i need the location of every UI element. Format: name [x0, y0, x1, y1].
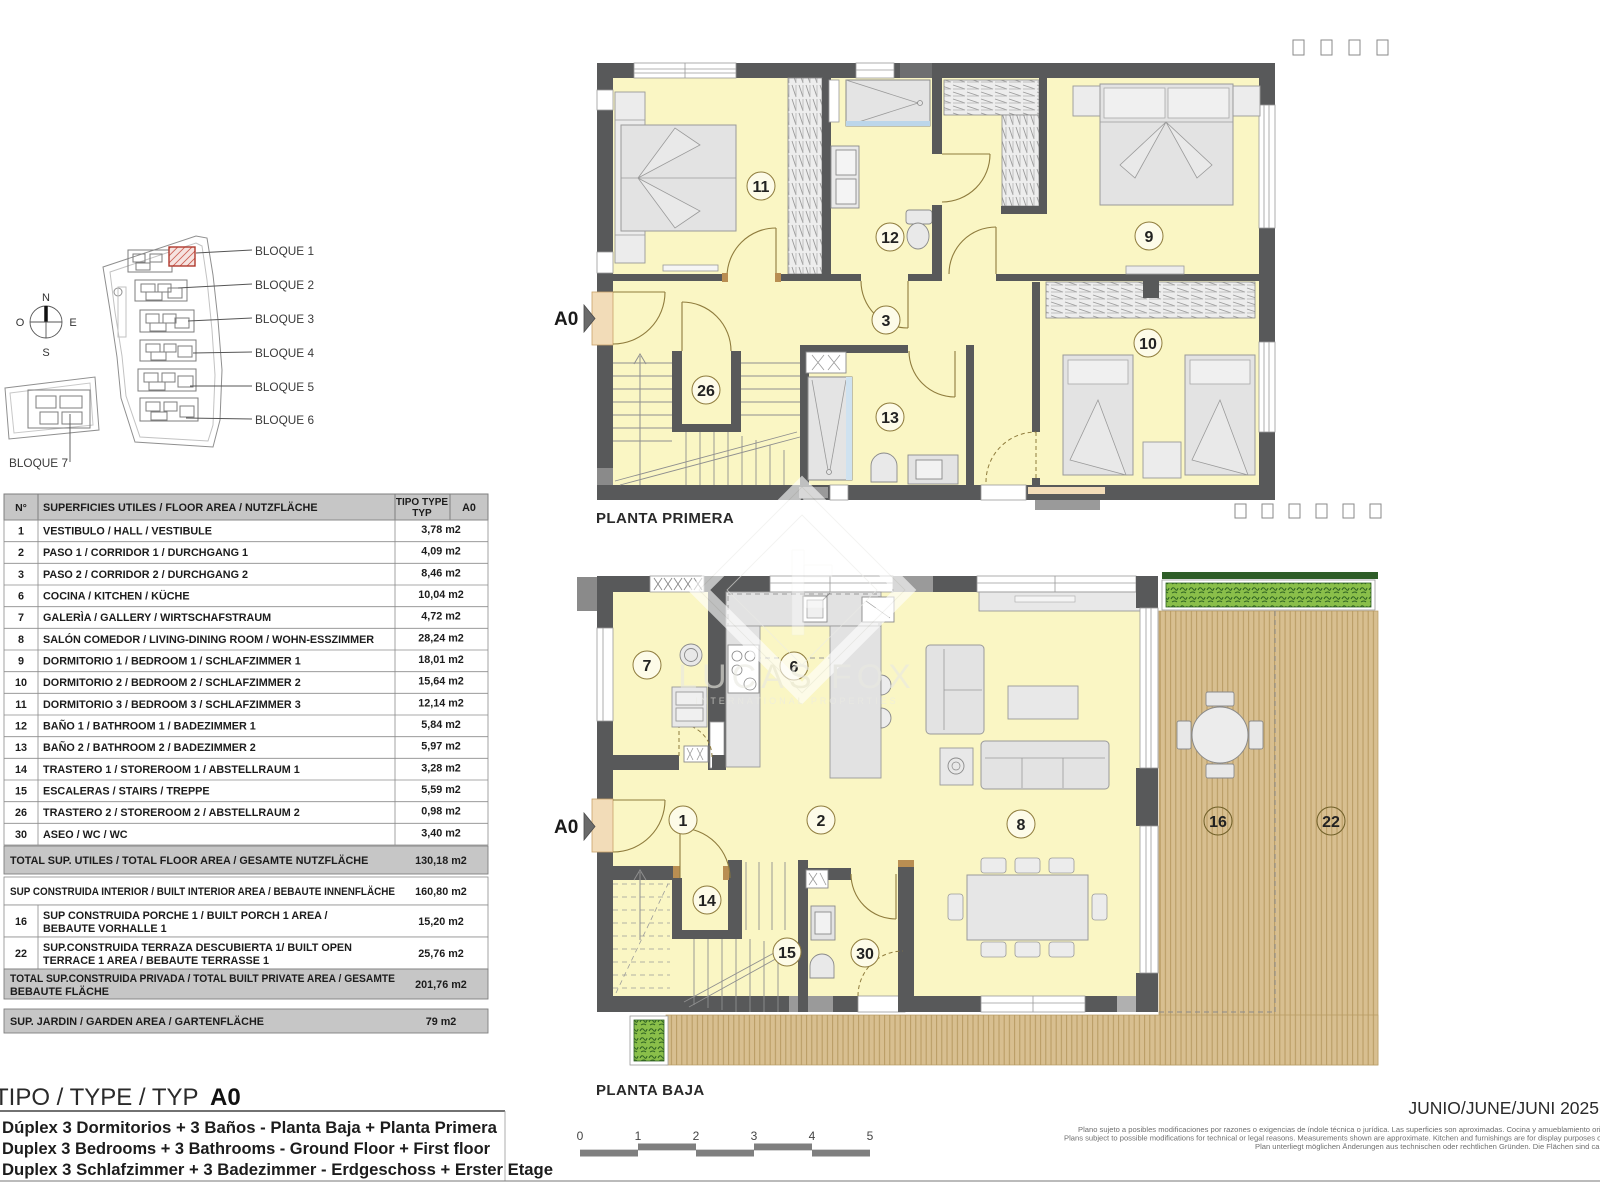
svg-text:3,28 m2: 3,28 m2 — [421, 762, 461, 774]
svg-text:GALERÌA / GALLERY / WIRTSCHAFS: GALERÌA / GALLERY / WIRTSCHAFSTRAUM — [43, 611, 271, 624]
svg-text:N: N — [42, 292, 50, 304]
svg-text:ESCALERAS / STAIRS / TREPPE: ESCALERAS / STAIRS / TREPPE — [43, 786, 210, 798]
svg-text:14: 14 — [698, 893, 716, 910]
svg-text:Dúplex 3 Dormitorios + 3 Baños: Dúplex 3 Dormitorios + 3 Baños - Planta … — [2, 1118, 498, 1137]
svg-text:A0: A0 — [554, 309, 578, 330]
svg-text:LUCAS FOX: LUCAS FOX — [678, 658, 916, 696]
svg-text:30: 30 — [15, 829, 27, 841]
svg-text:15: 15 — [15, 786, 27, 798]
svg-text:22: 22 — [15, 948, 27, 960]
svg-text:E: E — [69, 317, 76, 329]
svg-text:30: 30 — [856, 946, 874, 963]
svg-text:79 m2: 79 m2 — [426, 1016, 457, 1028]
svg-text:TRASTERO 1 / STOREROOM 1 / ABS: TRASTERO 1 / STOREROOM 1 / ABSTELLRAUM 1 — [43, 764, 300, 776]
svg-text:TERRACE 1 AREA / BEBAUTE TERR: TERRACE 1 AREA / BEBAUTE TERRASSE 1 — [43, 955, 269, 967]
svg-text:3: 3 — [882, 313, 891, 330]
svg-text:16: 16 — [15, 916, 27, 928]
svg-text:SALÓN COMEDOR / LIVING-DINING: SALÓN COMEDOR / LIVING-DINING ROOM / WOH… — [43, 633, 374, 646]
svg-text:TIPO TYPE: TIPO TYPE — [396, 497, 449, 508]
svg-text:5,59 m2: 5,59 m2 — [421, 784, 461, 796]
svg-text:7: 7 — [643, 658, 652, 675]
svg-text:A0: A0 — [462, 502, 476, 514]
svg-text:8: 8 — [18, 634, 24, 646]
svg-text:BLOQUE 1: BLOQUE 1 — [255, 244, 314, 258]
svg-text:6: 6 — [18, 591, 24, 603]
svg-text:0,98 m2: 0,98 m2 — [421, 806, 461, 818]
svg-text:SUP.CONSTRUIDA TERRAZA DESCUBI: SUP.CONSTRUIDA TERRAZA DESCUBIERTA 1/ BU… — [43, 942, 352, 954]
svg-text:7: 7 — [18, 612, 24, 624]
svg-text:13: 13 — [881, 410, 899, 427]
svg-text:12: 12 — [15, 721, 27, 733]
svg-text:3: 3 — [18, 569, 24, 581]
svg-text:9: 9 — [18, 656, 24, 668]
svg-text:1: 1 — [679, 813, 688, 830]
svg-text:2: 2 — [817, 813, 826, 830]
svg-text:DORMITORIO 2 / BEDROOM 2 / SCH: DORMITORIO 2 / BEDROOM 2 / SCHLAFZIMMER … — [43, 677, 301, 689]
svg-text:201,76 m2: 201,76 m2 — [415, 979, 467, 991]
svg-text:PASO 1 / CORRIDOR 1 / DURCHGA: PASO 1 / CORRIDOR 1 / DURCHGANG 1 — [43, 547, 248, 559]
svg-text:PLANTA PRIMERA: PLANTA PRIMERA — [596, 510, 734, 527]
svg-text:TOTAL SUP.CONSTRUIDA PRIVADA /: TOTAL SUP.CONSTRUIDA PRIVADA / TOTAL BUI… — [10, 973, 395, 985]
svg-text:A0: A0 — [210, 1084, 241, 1111]
svg-text:COCINA / KITCHEN / KÜCHE: COCINA / KITCHEN / KÜCHE — [43, 590, 190, 603]
svg-text:BLOQUE 2: BLOQUE 2 — [255, 278, 314, 292]
svg-text:10: 10 — [15, 677, 27, 689]
svg-text:A0: A0 — [554, 817, 578, 838]
svg-text:4: 4 — [809, 1129, 816, 1143]
svg-text:5,84 m2: 5,84 m2 — [421, 719, 461, 731]
svg-text:26: 26 — [15, 807, 27, 819]
svg-text:15: 15 — [778, 945, 796, 962]
svg-text:INTERNATIONAL PROPERTIES: INTERNATIONAL PROPERTIES — [695, 696, 898, 706]
svg-text:O: O — [16, 317, 25, 329]
svg-text:9: 9 — [1145, 229, 1154, 246]
svg-text:15,20 m2: 15,20 m2 — [418, 916, 464, 928]
svg-text:3,78 m2: 3,78 m2 — [421, 524, 461, 536]
svg-text:BLOQUE 3: BLOQUE 3 — [255, 312, 314, 326]
svg-text:11: 11 — [753, 179, 770, 196]
svg-text:25,76 m2: 25,76 m2 — [418, 948, 464, 960]
svg-text:TYP: TYP — [412, 508, 432, 519]
svg-text:BEBAUTE FLÄCHE: BEBAUTE FLÄCHE — [10, 985, 109, 998]
svg-text:0: 0 — [577, 1129, 584, 1143]
svg-text:SUP CONSTRUIDA PORCHE 1 / BUIL: SUP CONSTRUIDA PORCHE 1 / BUILT PORCH 1 … — [43, 910, 328, 922]
svg-text:DORMITORIO 1 / BEDROOM 1 / SCH: DORMITORIO 1 / BEDROOM 1 / SCHLAFZIMMER … — [43, 656, 301, 668]
svg-text:13: 13 — [15, 742, 27, 754]
svg-text:3,40 m2: 3,40 m2 — [421, 827, 461, 839]
svg-text:BLOQUE 7: BLOQUE 7 — [9, 456, 68, 470]
svg-text:Plan unterliegt möglichen Ände: Plan unterliegt möglichen Änderungen aus… — [1255, 1142, 1600, 1151]
svg-text:PASO 2 / CORRIDOR 2 / DURCHGA: PASO 2 / CORRIDOR 2 / DURCHGANG 2 — [43, 569, 248, 581]
svg-text:VESTIBULO / HALL / VESTIBULE: VESTIBULO / HALL / VESTIBULE — [43, 526, 212, 538]
svg-text:BEBAUTE VORHALLE 1: BEBAUTE VORHALLE 1 — [43, 923, 167, 935]
svg-text:12,14 m2: 12,14 m2 — [418, 697, 464, 709]
svg-text:15,64 m2: 15,64 m2 — [418, 676, 464, 688]
svg-text:26: 26 — [697, 383, 715, 400]
svg-text:BLOQUE 5: BLOQUE 5 — [255, 380, 314, 394]
svg-text:2: 2 — [18, 547, 24, 559]
svg-text:8: 8 — [1017, 817, 1026, 834]
svg-text:4,72 m2: 4,72 m2 — [421, 611, 461, 623]
svg-text:BAÑO 1 / BATHROOM 1 / BADEZIMM: BAÑO 1 / BATHROOM 1 / BADEZIMMER 1 — [43, 720, 256, 733]
svg-text:28,24 m2: 28,24 m2 — [418, 632, 464, 644]
svg-text:TIPO / TYPE / TYP: TIPO / TYPE / TYP — [0, 1084, 199, 1111]
svg-text:4,09 m2: 4,09 m2 — [421, 546, 461, 558]
svg-text:10,04 m2: 10,04 m2 — [418, 589, 464, 601]
svg-text:5: 5 — [867, 1129, 874, 1143]
svg-text:Duplex 3 Schlafzimmer + 3 Bade: Duplex 3 Schlafzimmer + 3 Badezimmer - E… — [2, 1160, 553, 1179]
svg-text:11: 11 — [15, 699, 26, 711]
svg-text:18,01 m2: 18,01 m2 — [418, 654, 464, 666]
svg-text:Duplex 3 Bedrooms + 3 Bathroom: Duplex 3 Bedrooms + 3 Bathrooms - Ground… — [2, 1139, 490, 1158]
svg-text:22: 22 — [1322, 814, 1340, 831]
svg-text:DORMITORIO 3 / BEDROOM 3 / SCH: DORMITORIO 3 / BEDROOM 3 / SCHLAFZIMMER … — [43, 699, 301, 711]
svg-text:BLOQUE 4: BLOQUE 4 — [255, 346, 314, 360]
svg-text:5,97 m2: 5,97 m2 — [421, 741, 461, 753]
svg-text:SUP. JARDIN / GARDEN AREA / GA: SUP. JARDIN / GARDEN AREA / GARTENFLÄCHE — [10, 1015, 264, 1028]
svg-text:BLOQUE 6: BLOQUE 6 — [255, 413, 314, 427]
svg-text:S: S — [42, 347, 49, 359]
svg-text:ASEO / WC / WC: ASEO / WC / WC — [43, 829, 128, 841]
svg-text:SUP CONSTRUIDA INTERIOR / BUIL: SUP CONSTRUIDA INTERIOR / BUILT INTERIOR… — [10, 885, 395, 898]
svg-text:1: 1 — [18, 526, 24, 538]
svg-text:12: 12 — [881, 230, 899, 247]
svg-text:1: 1 — [635, 1129, 642, 1143]
svg-text:160,80 m2: 160,80 m2 — [415, 886, 467, 898]
svg-text:3: 3 — [751, 1129, 758, 1143]
svg-text:PLANTA BAJA: PLANTA BAJA — [596, 1082, 705, 1099]
svg-text:16: 16 — [1209, 814, 1227, 831]
svg-text:2: 2 — [693, 1129, 700, 1143]
svg-text:BAÑO 2 / BATHROOM 2 / BADEZIMM: BAÑO 2 / BATHROOM 2 / BADEZIMMER 2 — [43, 741, 256, 754]
svg-text:8,46 m2: 8,46 m2 — [421, 567, 461, 579]
svg-text:14: 14 — [15, 764, 27, 776]
svg-text:N°: N° — [15, 502, 27, 514]
svg-text:10: 10 — [1139, 336, 1157, 353]
svg-text:TRASTERO 2 / STOREROOM 2 / ABS: TRASTERO 2 / STOREROOM 2 / ABSTELLRAUM 2 — [43, 807, 300, 819]
svg-text:130,18 m2: 130,18 m2 — [415, 855, 467, 867]
svg-text:TOTAL SUP. UTILES / TOTAL FLOO: TOTAL SUP. UTILES / TOTAL FLOOR AREA / G… — [10, 854, 368, 867]
svg-text:SUPERFICIES UTILES / FLOOR ARE: SUPERFICIES UTILES / FLOOR AREA / NUTZFL… — [43, 501, 318, 514]
svg-text:JUNIO/JUNE/JUNI 2025: JUNIO/JUNE/JUNI 2025 — [1408, 1098, 1599, 1118]
